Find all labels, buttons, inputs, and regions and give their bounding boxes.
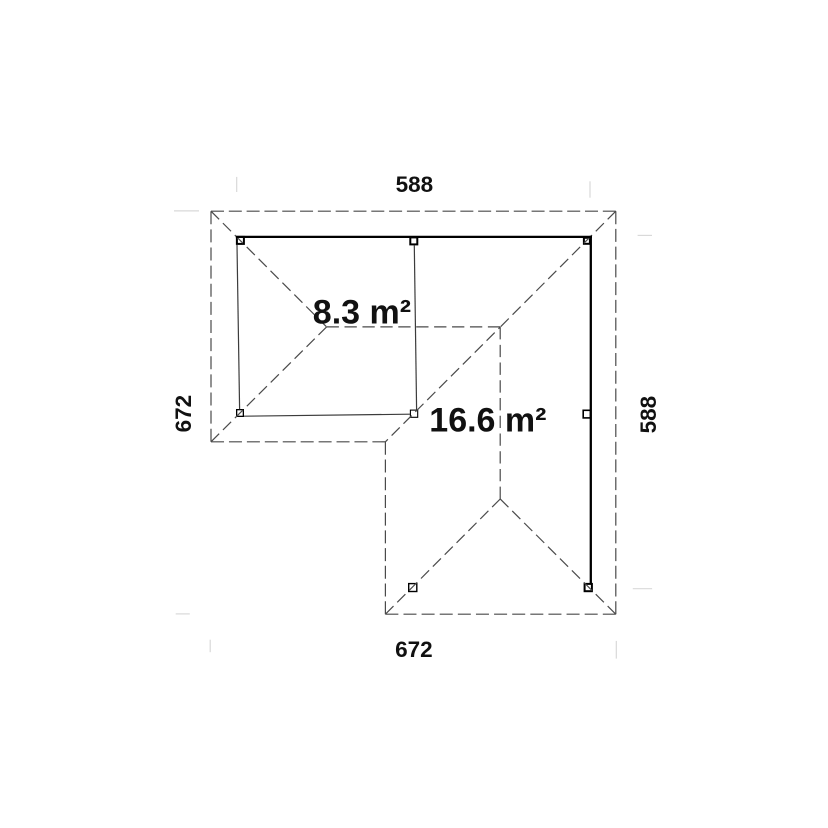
svg-text:672: 672 [171, 395, 196, 433]
svg-text:588: 588 [396, 172, 434, 197]
svg-text:672: 672 [395, 637, 433, 662]
svg-text:588: 588 [636, 396, 661, 434]
svg-text:8.3 m²: 8.3 m² [313, 294, 411, 332]
svg-text:16.6 m²: 16.6 m² [429, 401, 546, 439]
